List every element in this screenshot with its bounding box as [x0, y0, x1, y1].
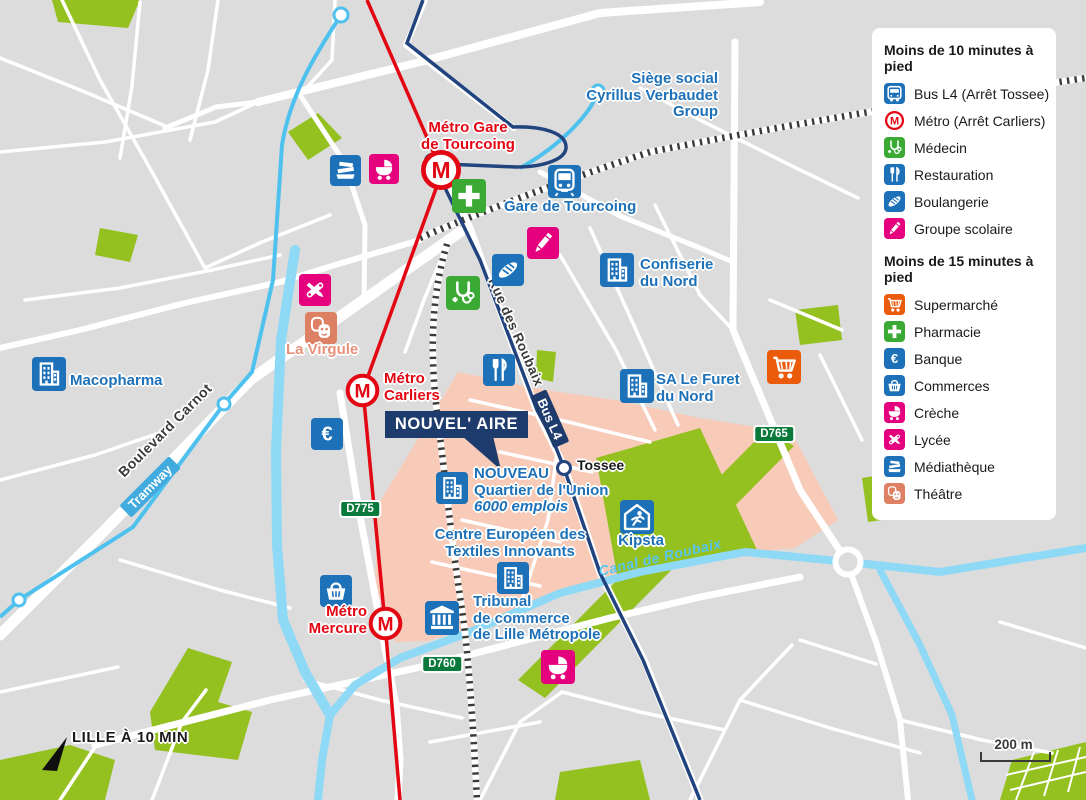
nouvel-aire-callout: NOUVEL' AIRE [385, 411, 528, 438]
marker-banque: € [311, 418, 343, 450]
label-sa-le-furet-du-nord: SA Le Furetdu Nord [656, 372, 740, 405]
building-icon [600, 253, 634, 287]
legend-item-label: Théâtre [914, 486, 962, 502]
legend-item-label: Boulangerie [914, 194, 989, 210]
commerces-icon [884, 375, 905, 396]
legend-item-boulangerie: Boulangerie [884, 191, 1044, 212]
boulangerie-legend-swatch [884, 191, 905, 212]
legend-item-label: Supermarché [914, 297, 998, 313]
marker-building-furet [620, 369, 654, 403]
pharmacie-icon [452, 179, 486, 213]
kipsta-icon [620, 500, 654, 534]
legend-section-title-1: Moins de 10 minutes à pied [884, 42, 1044, 74]
restauration-legend-swatch [884, 164, 905, 185]
boulangerie-icon [884, 191, 905, 212]
marker-building-ceti [497, 562, 529, 594]
building-icon [436, 472, 468, 504]
restauration-icon [483, 354, 515, 386]
legend-item-label: Lycée [914, 432, 951, 448]
lycee-icon [884, 429, 905, 450]
marker-building-confiserie [600, 253, 634, 287]
mediatheque-legend-swatch [884, 456, 905, 477]
legend-body: Moins de 10 minutes à piedBus L4 (Arrêt … [884, 42, 1044, 504]
marker-building-macopharma [32, 357, 66, 391]
marker-creche-sud [541, 650, 575, 684]
lycee-icon [299, 274, 331, 306]
legend-item-bus: Bus L4 (Arrêt Tossee) [884, 83, 1044, 104]
legend-item-label: Bus L4 (Arrêt Tossee) [914, 86, 1049, 102]
svg-text:€: € [321, 424, 332, 446]
roundabout [836, 550, 861, 575]
building-icon [497, 562, 529, 594]
marker-medecin [446, 276, 480, 310]
legend-item-label: Métro (Arrêt Carliers) [914, 113, 1045, 129]
label-metro-gare-tourcoing: Métro Garede Tourcoing [421, 120, 515, 153]
banque-icon: € [884, 348, 905, 369]
svg-text:M: M [354, 381, 370, 402]
marker-restauration [483, 354, 515, 386]
building-icon [32, 357, 66, 391]
metro-icon: M [884, 110, 905, 131]
badge-d765: D765 [753, 425, 795, 443]
marker-supermarche [767, 350, 801, 384]
theatre-legend-swatch [884, 483, 905, 504]
building-icon [620, 369, 654, 403]
compass-label: LILLE À 10 MIN [72, 729, 188, 746]
label-tossee: Tossee [577, 458, 624, 473]
metro-icon: M [344, 372, 381, 409]
label-tribunal: Tribunalde commercede Lille Métropole [473, 594, 601, 644]
legend-item-label: Médiathèque [914, 459, 995, 475]
theatre-icon [884, 483, 905, 504]
svg-text:M: M [431, 157, 450, 183]
legend-item-label: Médecin [914, 140, 967, 156]
svg-text:€: € [891, 351, 899, 366]
pharmacie-legend-swatch [884, 321, 905, 342]
marker-gare-train [548, 165, 581, 198]
svg-text:M: M [890, 115, 899, 127]
label-gare-de-tourcoing: Gare de Tourcoing [504, 199, 636, 216]
marker-tribunal [425, 601, 459, 635]
map-canvas: MM€M Métro Garede TourcoingGare de Tourc… [0, 0, 1086, 800]
legend-item-label: Commerces [914, 378, 989, 394]
marker-mediatheque [330, 155, 361, 186]
groupe-scolaire-icon [884, 218, 905, 239]
legend-item-label: Crèche [914, 405, 959, 421]
label-kipsta: Kipsta [618, 533, 664, 550]
supermarche-icon [884, 294, 905, 315]
train-icon [548, 165, 581, 198]
pharmacie-icon [884, 321, 905, 342]
scalebar-label: 200 m [980, 737, 1047, 752]
legend-item-restauration: Restauration [884, 164, 1044, 185]
marker-lycee [299, 274, 331, 306]
creche-legend-swatch [884, 402, 905, 423]
legend-item-mediatheque: Médiathèque [884, 456, 1044, 477]
marker-pharmacie [452, 179, 486, 213]
legend-section-title-2: Moins de 15 minutes à pied [884, 253, 1044, 285]
legend-item-banque: €Banque [884, 348, 1044, 369]
label-confiserie-du-nord: Confiseriedu Nord [640, 257, 713, 290]
label-metro-mercure: MétroMercure [309, 604, 367, 637]
label-siege-social: Siège socialCyrillus VerbaudetGroup [586, 71, 718, 121]
mediatheque-icon [330, 155, 361, 186]
creche-icon [884, 402, 905, 423]
lycee-legend-swatch [884, 429, 905, 450]
scalebar-bracket [980, 752, 1051, 762]
label-nouveau-quartier: NOUVEAUQuartier de l'Union6000 emplois [474, 466, 608, 516]
legend-item-label: Pharmacie [914, 324, 981, 340]
banque-icon: € [311, 418, 343, 450]
medecin-legend-swatch [884, 137, 905, 158]
legend-item-label: Groupe scolaire [914, 221, 1013, 237]
medecin-icon [446, 276, 480, 310]
marker-metro-mercure: M [367, 605, 404, 642]
tribunal-icon [425, 601, 459, 635]
boulangerie-icon [492, 254, 524, 286]
marker-creche-nord [369, 154, 399, 184]
bus-legend-swatch [884, 83, 905, 104]
marker-metro-carliers: M [344, 372, 381, 409]
label-la-virgule: La Virgule [286, 342, 358, 359]
legend-item-groupe-scolaire: Groupe scolaire [884, 218, 1044, 239]
marker-kipsta [620, 500, 654, 534]
groupe-scolaire-legend-swatch [884, 218, 905, 239]
legend-item-theatre: Théâtre [884, 483, 1044, 504]
legend-item-label: Restauration [914, 167, 993, 183]
legend-item-metro: MMétro (Arrêt Carliers) [884, 110, 1044, 131]
legend-item-commerces: Commerces [884, 375, 1044, 396]
legend-item-medecin: Médecin [884, 137, 1044, 158]
supermarche-legend-swatch [884, 294, 905, 315]
label-metro-carliers: MétroCarliers [384, 371, 440, 404]
legend-item-label: Banque [914, 351, 962, 367]
metro-legend-swatch: M [884, 110, 905, 131]
groupe-scolaire-icon [527, 227, 559, 259]
medecin-icon [884, 137, 905, 158]
legend-item-pharmacie: Pharmacie [884, 321, 1044, 342]
marker-theatre [305, 312, 337, 344]
label-centre-europeen: Centre Européen desTextiles Innovants [435, 527, 586, 560]
badge-d760: D760 [421, 655, 463, 673]
metro-icon: M [367, 605, 404, 642]
banque-legend-swatch: € [884, 348, 905, 369]
legend-item-creche: Crèche [884, 402, 1044, 423]
legend-panel: Moins de 10 minutes à piedBus L4 (Arrêt … [872, 28, 1056, 520]
legend-item-lycee: Lycée [884, 429, 1044, 450]
label-macopharma: Macopharma [70, 373, 163, 390]
marker-boulangerie [492, 254, 524, 286]
creche-icon [541, 650, 575, 684]
marker-groupe-scolaire [527, 227, 559, 259]
supermarche-icon [767, 350, 801, 384]
marker-building-nouveau [436, 472, 468, 504]
restauration-icon [884, 164, 905, 185]
creche-icon [369, 154, 399, 184]
bus-icon [884, 83, 905, 104]
svg-text:M: M [377, 614, 393, 635]
commerces-legend-swatch [884, 375, 905, 396]
mediatheque-icon [884, 456, 905, 477]
badge-d775: D775 [339, 500, 381, 518]
theatre-icon [305, 312, 337, 344]
legend-item-supermarche: Supermarché [884, 294, 1044, 315]
